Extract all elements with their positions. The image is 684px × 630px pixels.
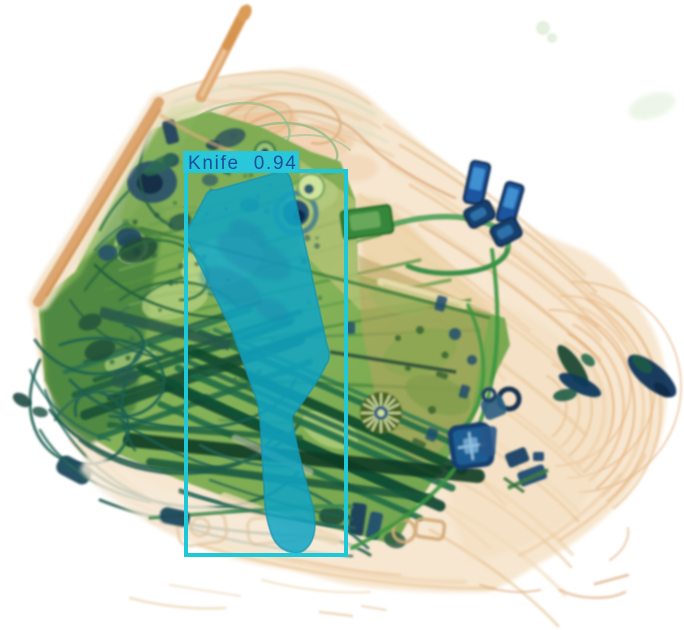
svg-text:Knife 0.94: Knife 0.94	[188, 153, 298, 174]
